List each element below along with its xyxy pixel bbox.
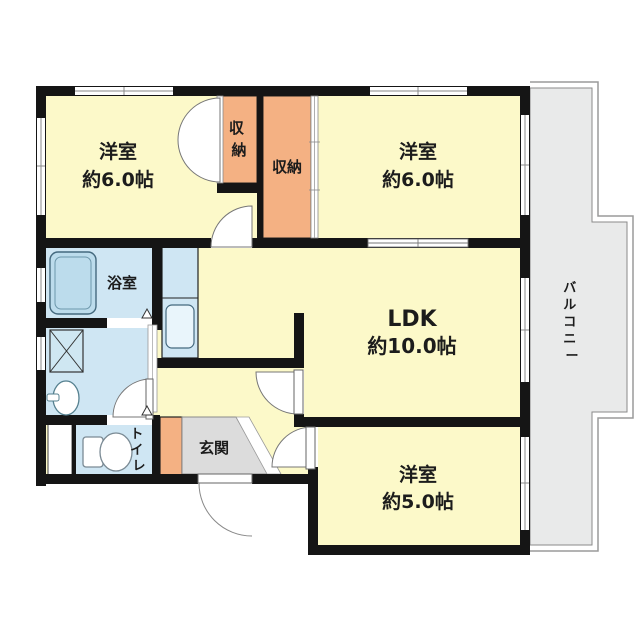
window-bedroom1-left: [37, 118, 45, 215]
window-bedroom3-balcony: [521, 437, 529, 530]
window-washroom-left: [37, 337, 45, 370]
window-bathroom-left: [37, 268, 45, 302]
ldk-size: 約10.0帖: [367, 334, 456, 358]
ldk-label: LDK: [387, 307, 437, 332]
floor-plan-page: 洋室 約6.0帖 洋室 約6.0帖 LDK 約10.0帖 洋室 約5.0帖 浴室…: [0, 0, 640, 640]
bedroom3-floor: [318, 427, 520, 545]
entrance-door-leaf: [198, 474, 252, 483]
washing-machine-icon: [50, 330, 83, 372]
bedroom3-label: 洋室: [399, 463, 437, 486]
toilet-label: ト イ レ: [130, 427, 148, 474]
window-bedroom2-top: [370, 87, 467, 95]
balcony: [530, 82, 633, 551]
bedroom2-label: 洋室: [399, 140, 437, 163]
ldk-door-leaf: [294, 370, 303, 414]
toilet-icon: [83, 433, 132, 471]
closet2-door: [309, 96, 320, 238]
floor-plan: 洋室 約6.0帖 洋室 約6.0帖 LDK 約10.0帖 洋室 約5.0帖 浴室…: [0, 0, 640, 640]
bedroom3-size: 約5.0帖: [382, 490, 454, 513]
window-ldk-balcony: [521, 278, 529, 382]
meter-box: [48, 418, 72, 476]
entrance-label: 玄関: [199, 439, 229, 457]
window-bedroom1-top: [75, 87, 173, 95]
bathroom-label: 浴室: [107, 274, 137, 292]
bathtub-icon: [50, 252, 96, 314]
bedroom3-door-leaf: [306, 427, 315, 469]
closet1-floor: [222, 96, 257, 183]
closet2-label: 収納: [272, 158, 302, 176]
bedroom1-size: 約6.0帖: [82, 168, 154, 191]
kitchen-sink-icon: [166, 305, 194, 348]
sliding-door-bedroom2: [368, 239, 468, 247]
entrance-door-swing: [199, 483, 252, 536]
bedroom2-size: 約6.0帖: [382, 168, 454, 191]
kitchen-counter-icon: [162, 247, 198, 358]
bedroom1-label: 洋室: [99, 140, 137, 163]
window-bedroom2-balcony: [521, 115, 529, 215]
balcony-label: バ ル コ ニ ー: [563, 281, 581, 364]
shoe-cabinet: [160, 417, 182, 476]
